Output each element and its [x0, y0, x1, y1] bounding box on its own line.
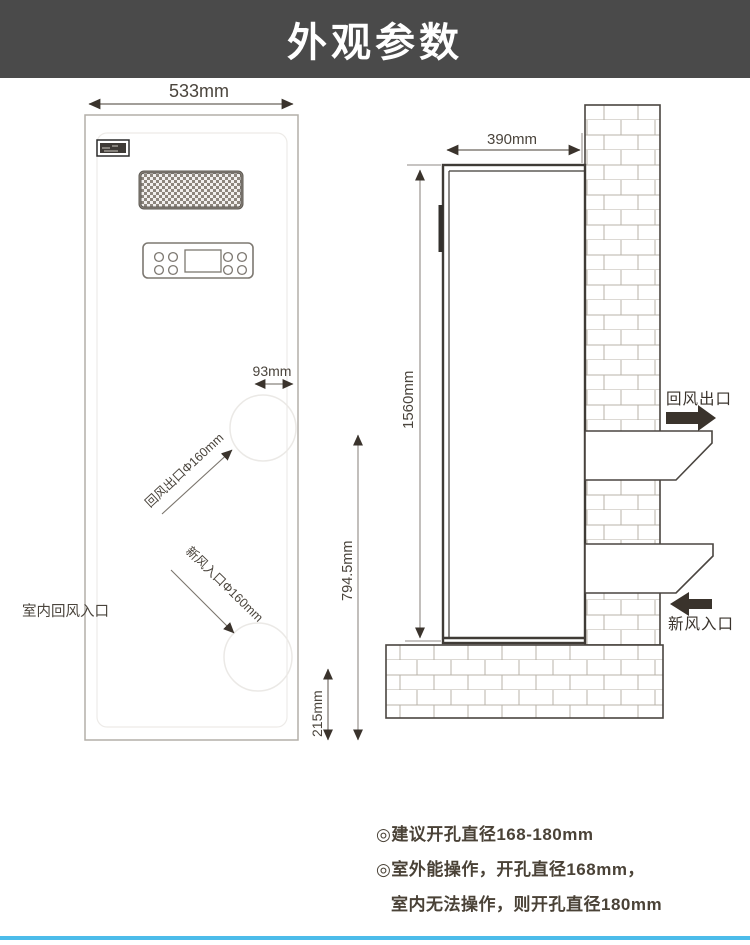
return-outlet-flow-label: 回风出口 [666, 390, 732, 408]
side-handle [439, 205, 444, 252]
dim-side-height-label: 1560mm [400, 371, 417, 429]
dim-outlet-height: 794.5mm [340, 435, 358, 740]
dimension-drawing: 533mm 93mm 回风出口Φ160mm 新风入口Φ160mm 室内回风入口 [0, 0, 750, 945]
floor-platform [386, 645, 663, 718]
dim-side-height: 1560mm [400, 165, 441, 641]
air-grille [140, 172, 242, 208]
dim-outlet-height-label: 794.5mm [340, 541, 356, 601]
control-panel [143, 243, 253, 278]
dim-front-width: 533mm [89, 81, 293, 104]
indoor-return-inlet-label: 室内回风入口 [22, 603, 109, 620]
product-spec-page: 外观参数 [0, 0, 750, 945]
dim-bottom-port-label: 215mm [309, 690, 325, 737]
footer-accent-bar [0, 936, 750, 940]
fresh-inlet-duct [585, 544, 713, 593]
airflow-left-arrow-icon [670, 592, 712, 616]
fresh-inlet-flow: 新风入口 [668, 592, 734, 633]
dim-front-width-label: 533mm [169, 81, 229, 101]
return-outlet-duct [585, 431, 712, 480]
dim-grille-offset-label: 93mm [253, 363, 292, 379]
panel-display [185, 250, 221, 272]
dim-side-depth-label: 390mm [487, 131, 537, 148]
note-indoor-not-operable: 室内无法操作，则开孔直径180mm [391, 890, 662, 915]
side-cabinet [439, 165, 586, 643]
note-recommended-hole-size: ◎建议开孔直径168-180mm [376, 820, 593, 845]
note-outdoor-operable: ◎室外能操作，开孔直径168mm， [376, 855, 645, 880]
airflow-right-arrow-icon [666, 405, 716, 431]
dim-side-depth: 390mm [447, 131, 582, 163]
brand-logo [97, 140, 129, 156]
side-view: 390mm 1560mm 回风出口 新风入口 [386, 105, 734, 718]
dim-bottom-port: 215mm [309, 669, 328, 740]
front-view: 533mm 93mm 回风出口Φ160mm 新风入口Φ160mm 室内回风入口 [22, 81, 358, 740]
return-outlet-flow: 回风出口 [666, 390, 732, 431]
fresh-inlet-flow-label: 新风入口 [668, 615, 734, 633]
